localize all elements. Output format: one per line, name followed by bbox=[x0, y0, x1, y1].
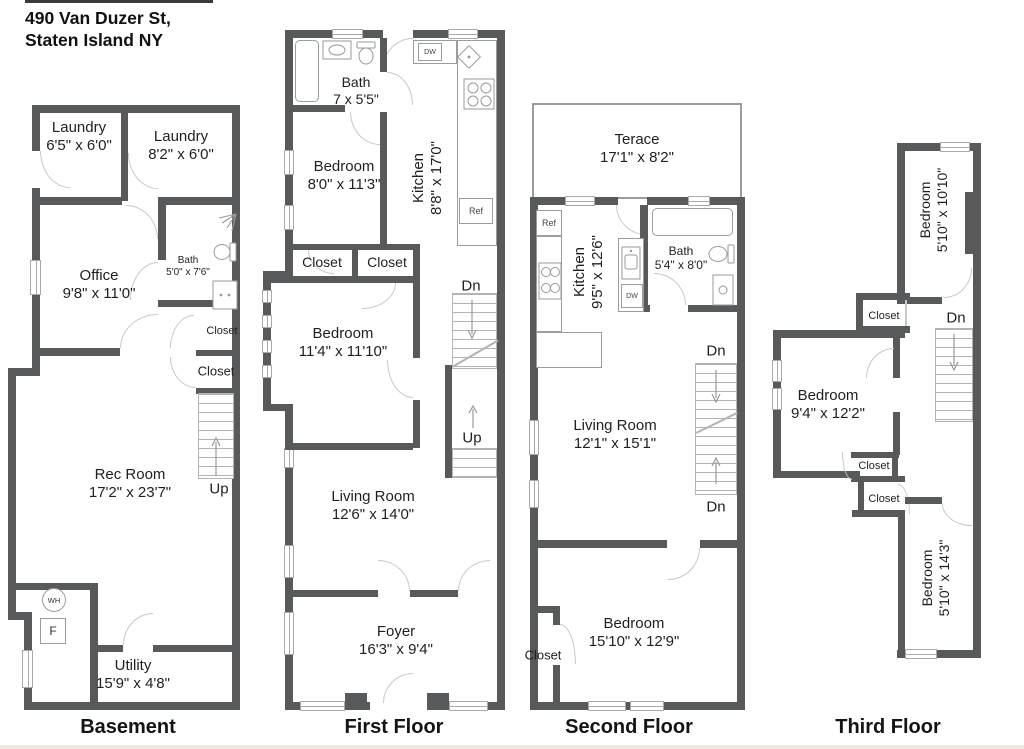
closet-label: Closet bbox=[302, 254, 342, 270]
window bbox=[940, 142, 970, 152]
room-name: Bedroom bbox=[308, 158, 381, 176]
wall bbox=[196, 350, 240, 356]
wall bbox=[773, 330, 905, 338]
room-name: Bath bbox=[333, 74, 379, 91]
room-dims: 5'10" x 14'3" bbox=[936, 540, 953, 617]
room-name: Bedroom bbox=[299, 325, 387, 343]
window bbox=[284, 545, 294, 578]
stairs-dn-label: Dn bbox=[706, 343, 725, 360]
wall bbox=[647, 197, 688, 205]
room-dims: 12'1" x 15'1" bbox=[573, 435, 656, 453]
wall bbox=[263, 303, 271, 315]
wall bbox=[773, 410, 781, 478]
wall bbox=[413, 244, 420, 283]
refrigerator-box: Ref bbox=[459, 198, 493, 224]
stairs-arrow-down-icon bbox=[947, 332, 961, 372]
room-dims: 5'10" x 10'10" bbox=[934, 168, 951, 253]
wall bbox=[158, 197, 240, 205]
room-dims: 9'8" x 11'0" bbox=[63, 285, 136, 303]
room-dims: 5'4" x 8'0" bbox=[655, 258, 707, 272]
room-dims: 9'5" x 12'6" bbox=[589, 235, 607, 309]
refrigerator-label: Ref bbox=[542, 218, 556, 228]
wall bbox=[688, 305, 745, 312]
wall bbox=[367, 702, 370, 710]
stove-icon bbox=[538, 262, 562, 300]
room-name: Terace bbox=[600, 131, 674, 149]
closet-label: Closet bbox=[868, 310, 899, 322]
wall bbox=[380, 112, 387, 244]
room-label-utility: Utility 15'9" x 4'8" bbox=[96, 657, 170, 693]
room-name: Living Room bbox=[331, 488, 414, 506]
sink-vanity-icon bbox=[212, 280, 238, 310]
sink-vanity-icon bbox=[322, 40, 352, 60]
wall bbox=[445, 365, 452, 478]
window bbox=[284, 612, 294, 655]
closet-label: Closet bbox=[198, 364, 235, 379]
door-arc bbox=[942, 504, 972, 526]
stairs-arrow-up-icon bbox=[466, 404, 480, 430]
wall bbox=[973, 151, 981, 658]
room-label-kitchen-second: Kitchen 9'5" x 12'6" bbox=[571, 235, 607, 309]
stairs-arrow-down-icon bbox=[465, 298, 479, 340]
wall bbox=[530, 702, 588, 710]
door-arc bbox=[387, 72, 413, 105]
kitchen-sink-icon bbox=[621, 246, 641, 280]
wall bbox=[553, 613, 560, 625]
room-dims: 15'10" x 12'9" bbox=[589, 633, 680, 651]
window bbox=[284, 205, 294, 230]
room-name: Bedroom bbox=[919, 540, 936, 617]
wall bbox=[32, 105, 240, 113]
floor-label-third: Third Floor bbox=[835, 716, 941, 739]
wall bbox=[893, 412, 900, 455]
wall bbox=[263, 328, 271, 340]
door-arc bbox=[170, 315, 194, 348]
wall bbox=[413, 283, 420, 358]
stairs-up-label: Up bbox=[462, 430, 481, 447]
wall bbox=[897, 143, 940, 151]
wall bbox=[970, 143, 981, 151]
wall bbox=[898, 510, 905, 658]
wall bbox=[263, 404, 293, 411]
bathtub-icon bbox=[295, 40, 319, 102]
window bbox=[529, 420, 539, 455]
wall bbox=[285, 175, 293, 205]
refrigerator-label: Ref bbox=[469, 206, 483, 216]
wall bbox=[497, 30, 505, 710]
room-label-terrace: Terace 17'1" x 8'2" bbox=[600, 131, 674, 167]
room-name: Kitchen bbox=[410, 141, 428, 215]
scan-artifact bbox=[25, 0, 213, 3]
door-arc bbox=[944, 268, 972, 298]
wall bbox=[700, 540, 737, 548]
window bbox=[688, 196, 710, 206]
door-arc bbox=[668, 548, 700, 580]
room-dims: 5'0" x 7'6" bbox=[166, 267, 210, 279]
window bbox=[262, 290, 272, 303]
wall bbox=[488, 702, 505, 710]
room-label-bath-second: Bath 5'4" x 8'0" bbox=[655, 244, 707, 272]
door-arc bbox=[126, 205, 158, 239]
wall bbox=[285, 230, 293, 271]
wall bbox=[24, 702, 240, 710]
wall bbox=[532, 606, 560, 613]
closet-label: Closet bbox=[206, 325, 237, 337]
room-dims: 17'2" x 23'7" bbox=[89, 484, 171, 502]
window bbox=[262, 340, 272, 353]
door-arc bbox=[120, 314, 158, 348]
wall bbox=[263, 276, 420, 283]
room-label-office: Office 9'8" x 11'0" bbox=[63, 267, 136, 303]
room-label-bedroom2-first: Bedroom 11'4" x 11'10" bbox=[299, 325, 387, 361]
window bbox=[30, 260, 41, 295]
room-label-bath-basement: Bath 5'0" x 7'6" bbox=[166, 255, 210, 279]
window bbox=[300, 701, 345, 711]
room-label-living-first: Living Room 12'6" x 14'0" bbox=[331, 488, 414, 524]
room-name: Bedroom bbox=[917, 168, 934, 253]
window bbox=[772, 388, 782, 410]
room-label-bedroom1-third: Bedroom 5'10" x 10'10" bbox=[917, 168, 951, 253]
door-leaf bbox=[905, 300, 907, 326]
wall bbox=[905, 497, 942, 504]
wall bbox=[285, 468, 293, 545]
room-dims: 15'9" x 4'8" bbox=[96, 675, 170, 693]
corner-sink-icon bbox=[452, 40, 486, 74]
wall bbox=[380, 38, 387, 72]
door-arc bbox=[362, 283, 396, 309]
room-dims: 9'4" x 12'2" bbox=[791, 405, 865, 423]
wall bbox=[413, 30, 448, 38]
wall bbox=[98, 645, 123, 652]
wall bbox=[530, 540, 667, 548]
window bbox=[332, 29, 363, 39]
wall bbox=[8, 368, 40, 376]
room-name: Laundry bbox=[148, 128, 214, 146]
wall bbox=[856, 293, 910, 300]
floor-label-first: First Floor bbox=[345, 716, 444, 739]
room-label-bedroom1-first: Bedroom 8'0" x 11'3" bbox=[308, 158, 381, 194]
wall bbox=[32, 197, 122, 205]
room-label-laundry1: Laundry 6'5" x 6'0" bbox=[46, 119, 112, 155]
dishwasher-box: DW bbox=[621, 284, 643, 308]
window bbox=[262, 365, 272, 378]
stairs-dn-label: Dn bbox=[946, 310, 965, 327]
wall bbox=[427, 693, 449, 710]
floor-label-second: Second Floor bbox=[565, 716, 693, 739]
window bbox=[448, 29, 478, 39]
wall bbox=[413, 400, 420, 448]
wall bbox=[773, 338, 781, 360]
plan-title-line1: 490 Van Duzer St, bbox=[25, 7, 171, 29]
refrigerator-box: Ref bbox=[536, 210, 562, 236]
room-name: Living Room bbox=[573, 417, 656, 435]
wall bbox=[32, 113, 40, 151]
wall bbox=[285, 590, 378, 597]
room-dims: 8'8" x 17'0" bbox=[428, 141, 446, 215]
door-arc bbox=[350, 112, 380, 145]
door-arc bbox=[40, 151, 70, 188]
wall bbox=[893, 338, 900, 378]
stairs-arrow-down-icon bbox=[709, 368, 723, 404]
wall bbox=[737, 197, 745, 710]
room-dims: 12'6" x 14'0" bbox=[331, 506, 414, 524]
window bbox=[284, 150, 294, 175]
room-name: Laundry bbox=[46, 119, 112, 137]
door-arc bbox=[170, 357, 196, 388]
door-arc bbox=[458, 560, 490, 591]
room-name: Kitchen bbox=[571, 235, 589, 309]
wall bbox=[285, 443, 413, 450]
room-label-bedroom2-third: Bedroom 9'4" x 12'2" bbox=[791, 387, 865, 423]
room-name: Bedroom bbox=[589, 615, 680, 633]
window bbox=[772, 360, 782, 382]
wall bbox=[664, 702, 745, 710]
dishwasher-label: DW bbox=[424, 49, 436, 56]
wall bbox=[285, 38, 293, 150]
wall bbox=[153, 645, 240, 652]
stairs bbox=[452, 448, 497, 478]
window bbox=[905, 649, 937, 659]
floor-plan-sheet: 490 Van Duzer St, Staten Island NY bbox=[0, 0, 1024, 749]
room-label-bedroom-second: Bedroom 15'10" x 12'9" bbox=[589, 615, 680, 651]
window bbox=[565, 196, 595, 206]
door-arc bbox=[383, 38, 413, 68]
wall bbox=[363, 30, 383, 38]
room-name: Bedroom bbox=[791, 387, 865, 405]
room-dims: 7 x 5'5" bbox=[333, 91, 379, 108]
door-arc bbox=[383, 673, 413, 703]
room-dims: 8'0" x 11'3" bbox=[308, 176, 381, 194]
sheet-bottom-strip bbox=[0, 745, 1024, 749]
room-dims: 16'3" x 9'4" bbox=[359, 641, 433, 659]
water-heater-icon: WH bbox=[42, 588, 66, 612]
door-arc bbox=[866, 348, 894, 378]
wall bbox=[897, 151, 905, 297]
room-label-bedroom3-third: Bedroom 5'10" x 14'3" bbox=[919, 540, 953, 617]
room-label-kitchen-first: Kitchen 8'8" x 17'0" bbox=[410, 141, 446, 215]
closet-label: Closet bbox=[858, 460, 889, 472]
window bbox=[22, 650, 33, 688]
stairs-arrow-up-icon bbox=[709, 456, 723, 486]
room-label-rec-room: Rec Room 17'2" x 23'7" bbox=[89, 466, 171, 502]
room-dims: 8'2" x 6'0" bbox=[148, 146, 214, 164]
window bbox=[262, 315, 272, 328]
room-dims: 17'1" x 8'2" bbox=[600, 149, 674, 167]
wall bbox=[285, 30, 332, 38]
closet-label: Closet bbox=[868, 493, 899, 505]
dishwasher-box: DW bbox=[418, 43, 442, 61]
window bbox=[630, 701, 664, 711]
wall bbox=[285, 702, 300, 710]
window bbox=[588, 701, 626, 711]
dishwasher-label: DW bbox=[626, 293, 638, 300]
wall bbox=[8, 376, 16, 620]
wall bbox=[965, 192, 973, 254]
bathtub-icon bbox=[652, 208, 733, 236]
shower-icon bbox=[216, 212, 238, 234]
wall bbox=[530, 455, 538, 480]
toilet-icon bbox=[355, 40, 377, 66]
wall bbox=[937, 650, 981, 658]
room-dims: 6'5" x 6'0" bbox=[46, 137, 112, 155]
water-heater-label: WH bbox=[48, 596, 61, 605]
room-name: Bath bbox=[166, 255, 210, 267]
wall bbox=[263, 353, 271, 365]
wall bbox=[410, 590, 458, 597]
room-name: Bath bbox=[655, 244, 707, 258]
stairs-up-label: Up bbox=[209, 481, 228, 498]
window bbox=[529, 480, 539, 508]
wall bbox=[553, 665, 560, 702]
wall bbox=[897, 650, 905, 658]
door-arc bbox=[123, 613, 153, 645]
room-name: Foyer bbox=[359, 623, 433, 641]
room-label-laundry2: Laundry 8'2" x 6'0" bbox=[148, 128, 214, 164]
toilet-icon bbox=[212, 240, 238, 264]
wall bbox=[352, 250, 358, 276]
wall bbox=[32, 205, 40, 260]
room-dims: 11'4" x 11'10" bbox=[299, 343, 387, 361]
kitchen-island-counter bbox=[536, 332, 602, 368]
door-arc bbox=[378, 560, 410, 591]
wall bbox=[595, 197, 618, 205]
closet-label: Closet bbox=[367, 254, 407, 270]
wall bbox=[8, 612, 32, 620]
stairs-dn-label: Dn bbox=[461, 278, 480, 295]
door-arc bbox=[560, 624, 576, 664]
stove-icon bbox=[463, 78, 495, 110]
door-arc bbox=[654, 273, 686, 305]
wall bbox=[32, 295, 40, 375]
stairs-arrow-up-icon bbox=[209, 436, 223, 478]
room-label-living-second: Living Room 12'1" x 15'1" bbox=[573, 417, 656, 453]
wall bbox=[32, 348, 120, 356]
closet-label: Closet bbox=[525, 648, 562, 663]
room-name: Utility bbox=[96, 657, 170, 675]
furnace-icon: F bbox=[40, 618, 66, 644]
wall bbox=[121, 113, 128, 201]
room-label-foyer: Foyer 16'3" x 9'4" bbox=[359, 623, 433, 659]
room-label-bath-first: Bath 7 x 5'5" bbox=[333, 74, 379, 108]
furnace-label: F bbox=[49, 624, 56, 638]
window bbox=[284, 448, 294, 468]
plan-title: 490 Van Duzer St, Staten Island NY bbox=[25, 7, 171, 51]
toilet-icon bbox=[706, 243, 736, 265]
door-arc bbox=[387, 360, 413, 398]
window bbox=[449, 701, 488, 711]
wall bbox=[345, 693, 367, 710]
wall bbox=[158, 205, 166, 260]
floor-label-basement: Basement bbox=[80, 716, 176, 739]
room-name: Office bbox=[63, 267, 136, 285]
plan-title-line2: Staten Island NY bbox=[25, 29, 171, 51]
sink-vanity-icon bbox=[712, 274, 734, 306]
stairs-dn-label: Dn bbox=[706, 499, 725, 516]
room-name: Rec Room bbox=[89, 466, 171, 484]
